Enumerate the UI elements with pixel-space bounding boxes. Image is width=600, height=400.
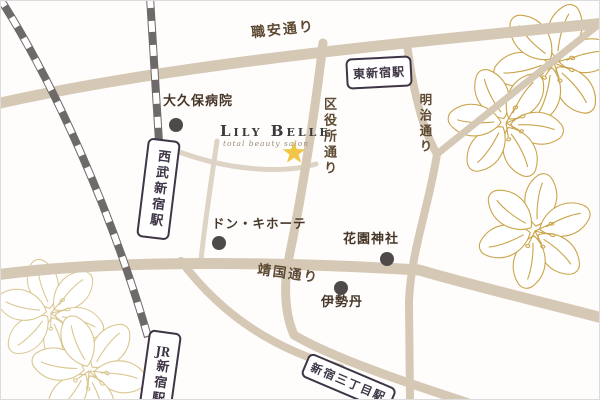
railway-line-jr — [1, 1, 148, 337]
lily-illustration — [477, 1, 600, 140]
poi-label-isetan: 伊勢丹 — [321, 296, 363, 311]
road-label-yasukuni-dori: 靖国通り — [256, 263, 320, 287]
railway-group — [1, 1, 159, 337]
poi-dot-isetan — [334, 281, 348, 295]
lily-illustration — [467, 164, 600, 299]
poi-dot-okubo-hospital — [169, 118, 183, 132]
salon-logo-title: Lily Belle — [220, 123, 326, 140]
road-kuyakusho-dori — [286, 43, 469, 400]
salon-logo-tagline: total beauty salon — [223, 140, 287, 149]
road-side-street-lilybelle — [169, 148, 316, 169]
poi-label-don-quijote: ドン・キホーテ — [212, 217, 307, 231]
lily-illustration — [1, 245, 119, 380]
access-map: 職安通り 区役所通り 明治通り 靖国通り 大久保病院 ドン・キホーテ 花園神社 … — [0, 0, 600, 400]
railway-line-seibu — [150, 1, 159, 142]
station-box-shinjuku-sanchome: 新宿三丁目駅 — [300, 352, 398, 400]
poi-dot-don-quijote — [212, 236, 226, 250]
road-label-shokuan-dori: 職安通り — [250, 19, 315, 42]
poi-dot-hanazono-shrine — [380, 252, 394, 266]
station-box-seibu-shinjuku: 西武新宿駅 — [136, 137, 181, 240]
road-label-meiji-dori: 明治通り — [417, 93, 431, 155]
station-label-shinjuku: 新宿駅 — [146, 357, 171, 400]
station-box-higashi-shinjuku: 東新宿駅 — [345, 55, 413, 89]
lily-illustration — [428, 46, 583, 200]
poi-label-okubo-hospital: 大久保病院 — [163, 95, 233, 110]
road-network — [1, 21, 600, 400]
map-artwork — [1, 1, 600, 400]
poi-label-hanazono-shrine: 花園神社 — [343, 233, 399, 248]
road-northeast-diagonal — [437, 21, 600, 154]
station-box-jr-shinjuku: JR新宿駅 — [137, 329, 182, 400]
lily-illustration-group — [1, 1, 600, 400]
